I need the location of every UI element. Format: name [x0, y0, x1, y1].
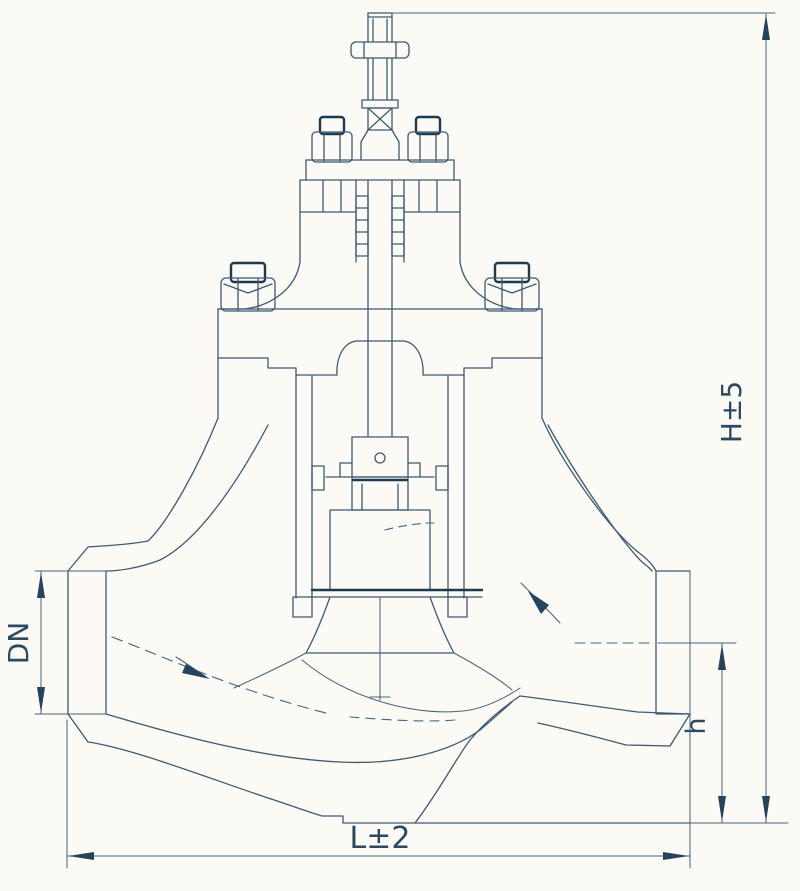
drawing-sheet: H±5 h DN L±2: [0, 0, 800, 891]
stem-locknut: [351, 42, 409, 58]
flow-arrow-outlet: [528, 591, 549, 614]
dimension-DN: DN: [2, 571, 106, 714]
body-flange: [218, 309, 542, 375]
flow-arrows: [112, 583, 652, 721]
bonnet-bolt-left: [221, 263, 275, 311]
seat-ring: [234, 590, 512, 700]
gland-flange: [306, 160, 454, 180]
valve-technical-drawing: H±5 h DN L±2: [0, 0, 800, 891]
dimension-label-H: H±5: [715, 381, 748, 443]
valve-plug: [326, 180, 434, 590]
packing-gland: [306, 117, 454, 212]
packing-rings: [356, 196, 404, 256]
dimension-label-h: h: [681, 717, 712, 734]
dimension-H: H±5: [392, 13, 788, 823]
outlet-port: [520, 571, 690, 746]
dimension-label-L: L±2: [350, 821, 411, 856]
valve-stem: [362, 13, 398, 108]
dimension-label-DN: DN: [2, 622, 35, 665]
inlet-port: [68, 571, 106, 742]
bonnet-bolt-right: [485, 263, 539, 311]
bonnet: [218, 180, 542, 309]
stem-indicator: [361, 108, 399, 160]
flow-arrow-inlet: [182, 664, 210, 679]
dimension-h: h: [658, 643, 736, 823]
gland-bolt-right: [408, 117, 448, 212]
cage: [296, 375, 464, 598]
gland-bolt-left: [312, 117, 352, 212]
